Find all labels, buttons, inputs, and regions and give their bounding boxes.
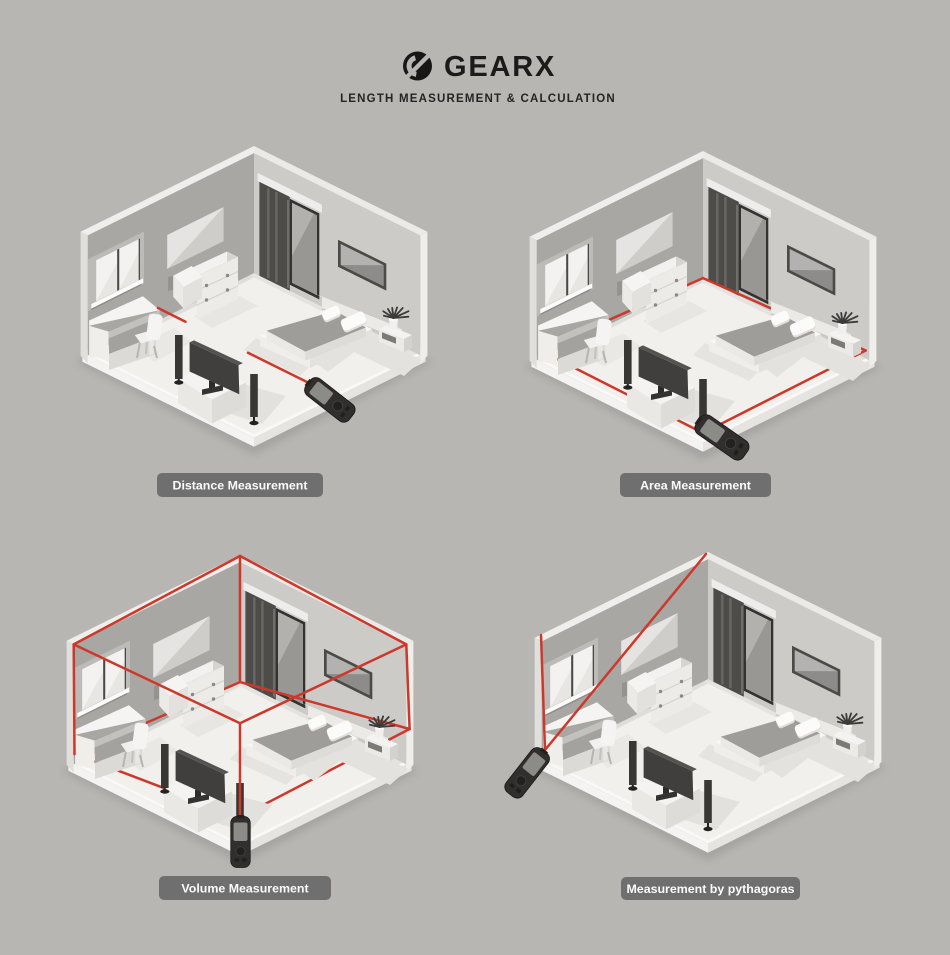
svg-text:Area Measurement: Area Measurement [640, 479, 751, 493]
svg-text:Volume Measurement: Volume Measurement [181, 882, 308, 896]
svg-text:LENGTH MEASUREMENT & CALCULATI: LENGTH MEASUREMENT & CALCULATION [340, 93, 616, 105]
svg-text:Distance Measurement: Distance Measurement [173, 479, 308, 493]
svg-text:Measurement by pythagoras: Measurement by pythagoras [626, 882, 794, 896]
svg-text:GEARX: GEARX [444, 51, 556, 83]
